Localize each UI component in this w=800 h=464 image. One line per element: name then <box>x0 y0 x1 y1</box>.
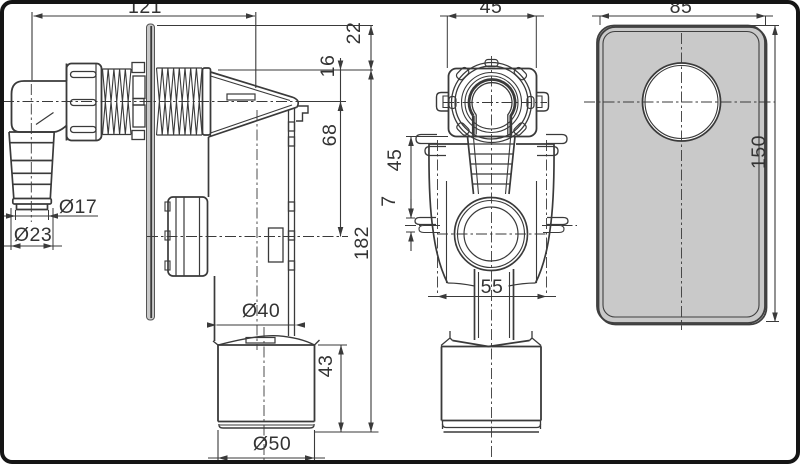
svg-text:45: 45 <box>384 149 406 172</box>
svg-text:68: 68 <box>319 124 341 147</box>
svg-text:Ø40: Ø40 <box>242 300 280 322</box>
svg-text:16: 16 <box>317 55 339 78</box>
svg-text:22: 22 <box>343 22 365 45</box>
svg-text:Ø50: Ø50 <box>253 433 291 455</box>
svg-text:182: 182 <box>351 226 373 260</box>
svg-text:Ø23: Ø23 <box>14 224 52 246</box>
svg-text:150: 150 <box>748 135 770 169</box>
svg-text:Ø17: Ø17 <box>59 196 97 218</box>
svg-text:7: 7 <box>378 195 400 206</box>
svg-text:55: 55 <box>481 276 504 298</box>
svg-text:43: 43 <box>315 355 337 378</box>
